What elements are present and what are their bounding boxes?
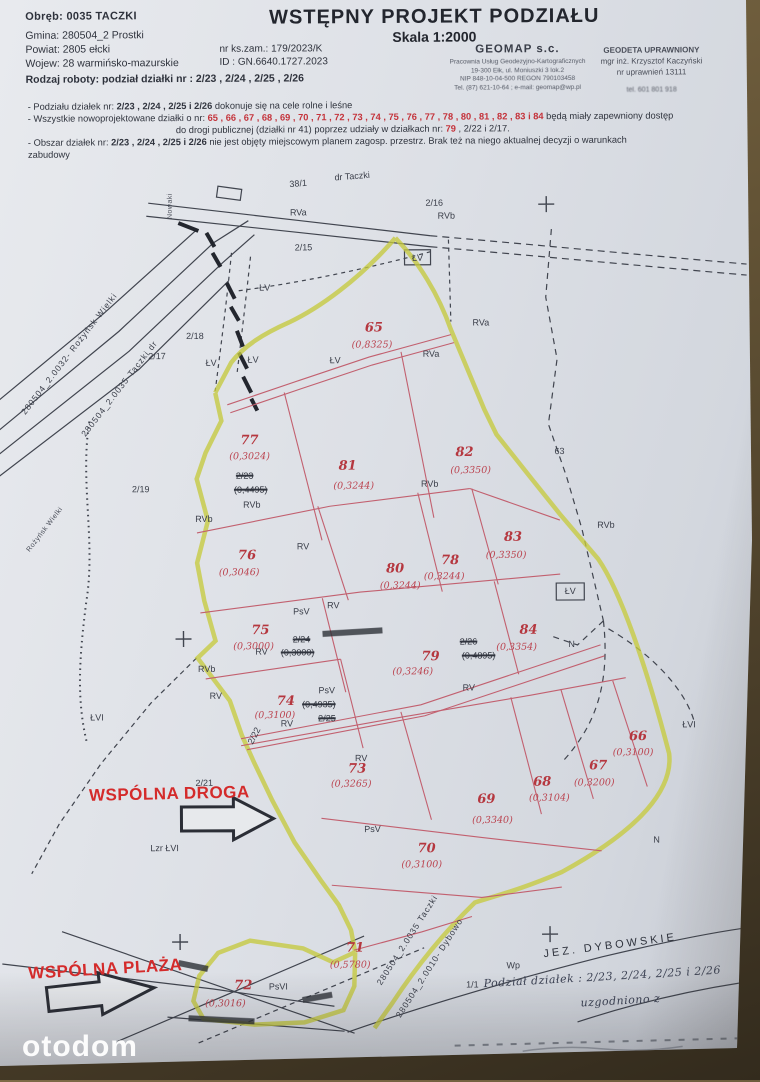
map-label: 2/18 [186, 331, 204, 341]
scanned-paper-sheet: Obręb: 0035 TACZKI Gmina: 280504_2 Prost… [0, 0, 760, 1080]
map-label: RV [297, 541, 309, 551]
map-label: Lzr ŁVI [150, 843, 179, 853]
map-label: 2/16 [425, 198, 443, 208]
map-label: (0,3340) [472, 815, 513, 826]
document-content: Obręb: 0035 TACZKI Gmina: 280504_2 Prost… [0, 0, 760, 1082]
map-label: ŁV [565, 586, 576, 596]
map-label: 76 [238, 548, 256, 563]
map-label: 2/25 [318, 713, 336, 723]
map-label: (0,3354) [496, 642, 537, 653]
map-label: 70 [418, 841, 436, 856]
map-label: (0,4895) [462, 650, 496, 660]
map-label: (0,3000) [281, 647, 315, 657]
map-label: RV [463, 683, 475, 693]
map-label: (0,3104) [529, 793, 570, 804]
map-label: RV [210, 691, 222, 701]
map-label: 69 [477, 792, 495, 807]
map-label: (0,3100) [401, 859, 442, 870]
map-label: ŁV [206, 358, 217, 368]
map-label: ŁV [248, 355, 259, 365]
map-label: (0,3246) [392, 666, 433, 677]
map-label: 81 [339, 459, 357, 474]
map-label: 38/1 [289, 178, 307, 189]
map-label: ŁV [412, 253, 423, 263]
map-label: Nowaki [167, 193, 174, 219]
map-label: (0,4495) [234, 485, 268, 495]
map-label: 2/23 [236, 471, 254, 481]
map-label: 73 [348, 762, 366, 777]
map-label: 77 [240, 433, 258, 448]
map-label: RVa [423, 349, 440, 359]
map-label: N [653, 835, 660, 845]
map-label: PsV [319, 685, 336, 695]
map-label: 83 [504, 530, 522, 545]
map-label: ŁVI [90, 712, 104, 722]
map-label: 84 [519, 623, 537, 638]
map-label: (0,3244) [424, 571, 465, 582]
map-label: Wp [506, 960, 520, 970]
map-label: (0,3016) [205, 998, 246, 1009]
map-label: RVb [438, 211, 455, 221]
map-label: PsV [293, 606, 310, 616]
map-label: 78 [441, 553, 459, 568]
map-label: (0,3100) [613, 747, 654, 758]
cadastral-lines [0, 183, 753, 1044]
map-label: 74 [277, 694, 295, 709]
map-label: 2/24 [293, 634, 311, 644]
map-label: RVa [472, 317, 489, 327]
map-label: ŁV [259, 283, 270, 293]
map-label: (0,3244) [333, 481, 374, 492]
map-label: (0,3200) [574, 777, 615, 788]
bottom-dashes [455, 1038, 748, 1052]
map-label: RVb [198, 664, 215, 674]
map-label: PsV [364, 824, 381, 834]
map-label: ŁV [330, 355, 341, 365]
map-label: RVb [421, 479, 438, 489]
map-label: PsVI [269, 981, 288, 991]
map-label: 82 [455, 445, 473, 460]
map-label: (0,3046) [219, 567, 260, 578]
watermark: otodom [22, 1030, 138, 1064]
map-label: 67 [589, 758, 607, 773]
map-label: 63 [555, 446, 565, 456]
map-label: RVb [195, 514, 212, 524]
map-label: ŁVI [682, 719, 696, 729]
map-label: 66 [629, 729, 647, 744]
map-label: RV [327, 600, 339, 610]
map-label: (0,3350) [450, 465, 491, 476]
map-label: 79 [422, 649, 440, 664]
map-label: 65 [365, 320, 383, 335]
map-label: 80 [386, 561, 404, 576]
map-label: N [568, 639, 575, 649]
map-label: (0,3350) [486, 550, 527, 561]
map-label: 2/15 [295, 242, 313, 252]
map-linework [0, 0, 760, 1082]
map-label: 71 [346, 941, 364, 956]
map-label: WSPÓLNA DROGA [89, 782, 250, 806]
photo-of-survey-document: { "watermark": "otodom", "header": { "le… [0, 0, 760, 1080]
map-label: (0,4935) [302, 699, 336, 709]
map-label: (0,3024) [229, 451, 270, 462]
map-label: RVb [597, 520, 614, 530]
map-label: 75 [251, 623, 269, 638]
map-label: 2/26 [460, 636, 478, 646]
road-hatch-marks [178, 223, 257, 411]
map-label: 68 [533, 775, 551, 790]
map-label: 72 [234, 978, 252, 993]
map-label: (0,3244) [380, 580, 421, 591]
map-label: 2/19 [132, 484, 150, 494]
map-label: (0,5780) [330, 960, 371, 971]
map-label: (0,3265) [331, 779, 372, 790]
map-label: RVb [243, 500, 260, 510]
map-label: (0,8325) [352, 339, 393, 350]
map-label: RVa [290, 207, 307, 217]
map-label: (0,3000) [233, 641, 274, 652]
map-label: (0,3100) [255, 710, 296, 721]
map-label: 1/1 [466, 979, 479, 989]
